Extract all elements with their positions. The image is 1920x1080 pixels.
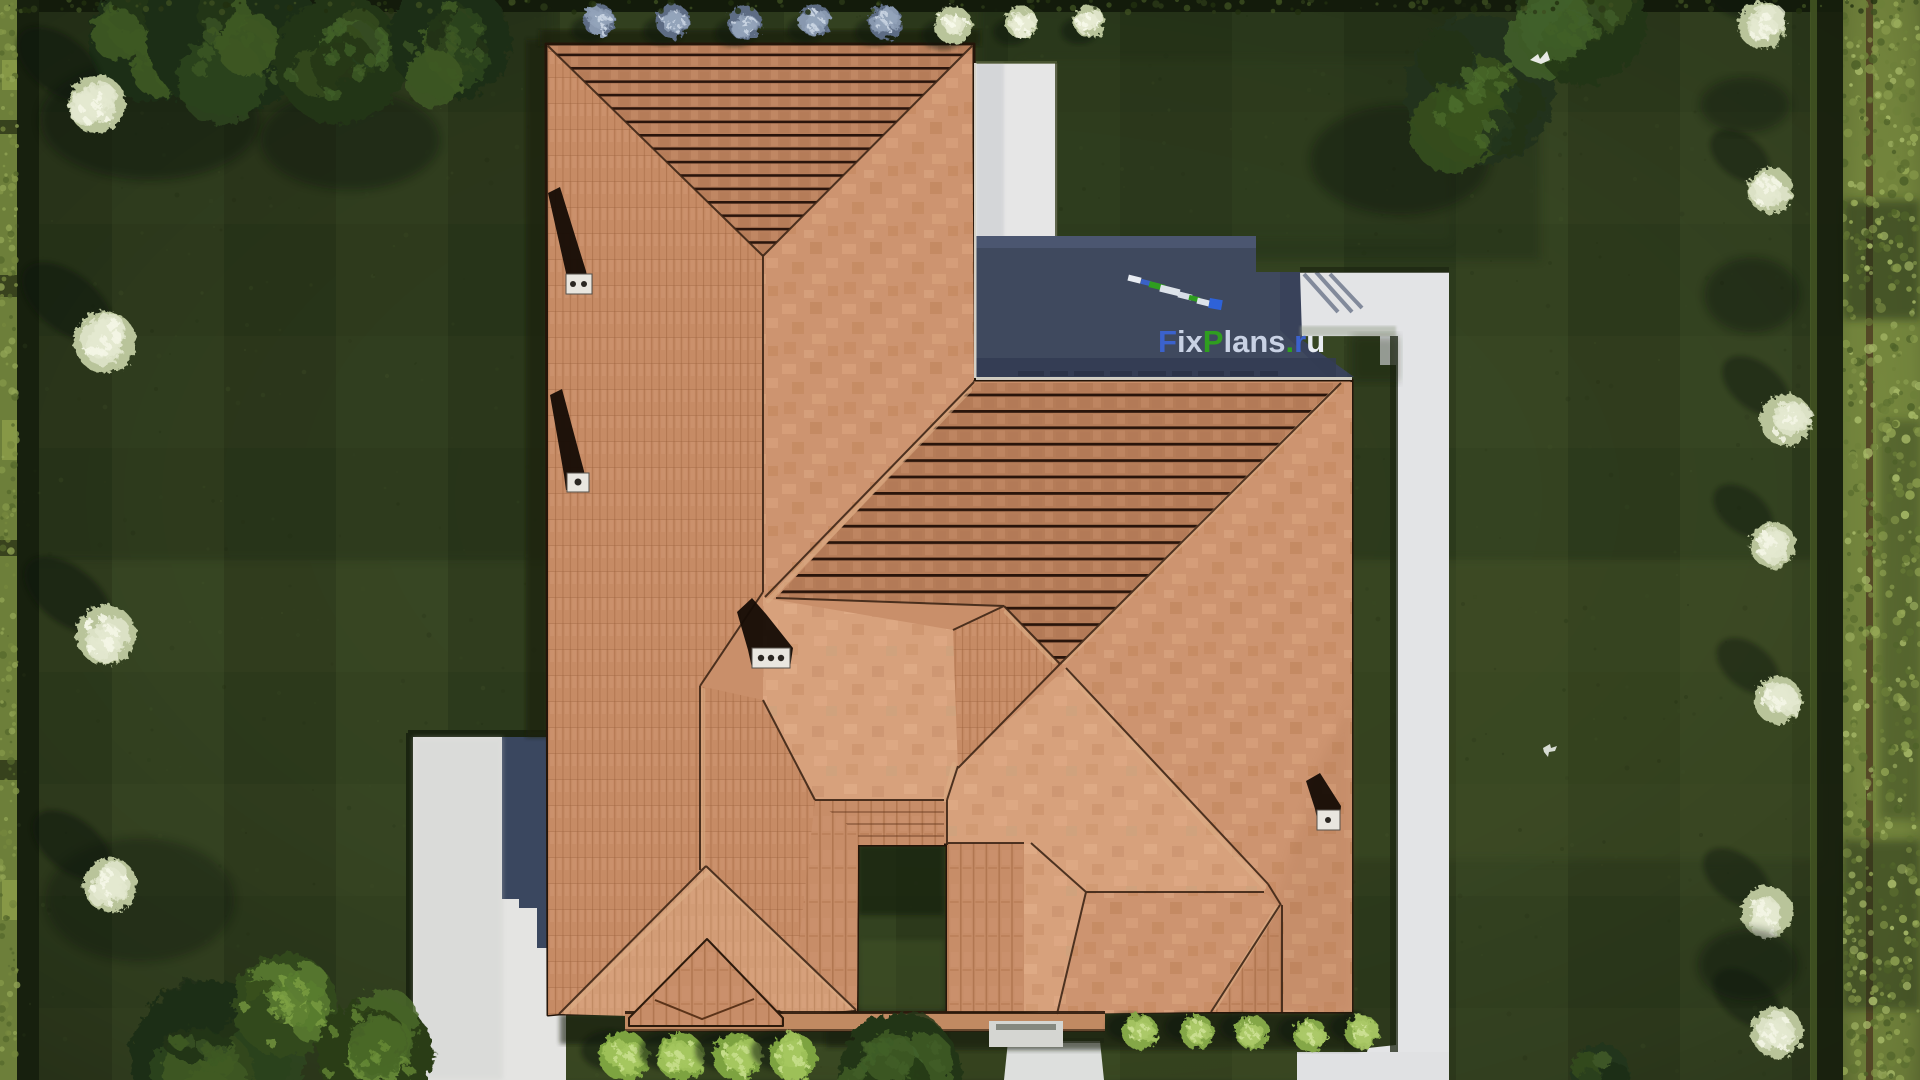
svg-text:FixPlans.ru: FixPlans.ru bbox=[1158, 324, 1325, 359]
